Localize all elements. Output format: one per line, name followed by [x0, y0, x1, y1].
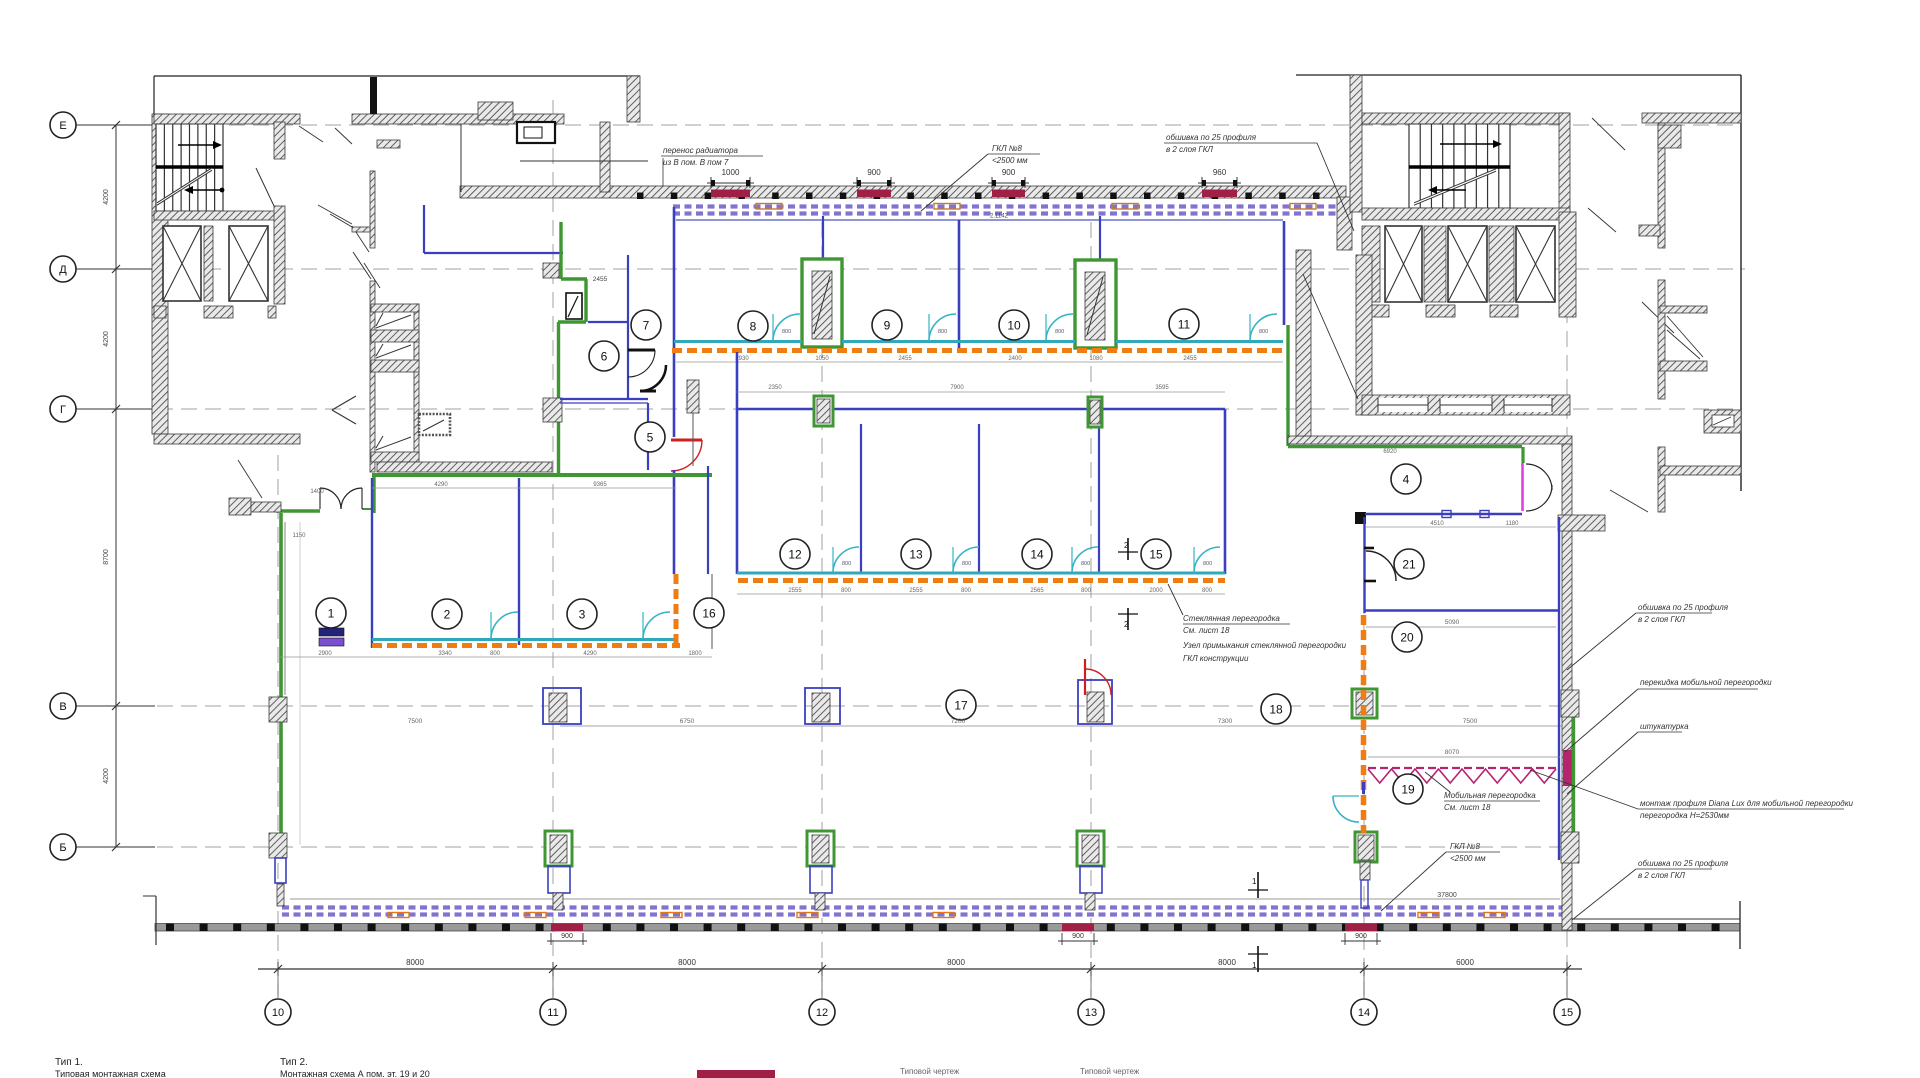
svg-text:2455: 2455	[593, 276, 608, 283]
svg-text:13: 13	[1085, 1007, 1097, 1019]
svg-text:монтаж профиля Diana Lux для м: монтаж профиля Diana Lux для мобильной п…	[1640, 799, 1853, 808]
svg-text:800: 800	[1259, 329, 1268, 335]
svg-text:800: 800	[1081, 561, 1090, 567]
svg-text:1: 1	[1252, 961, 1257, 970]
svg-text:2: 2	[1124, 620, 1129, 629]
svg-text:7900: 7900	[950, 385, 964, 391]
svg-text:1800: 1800	[688, 651, 702, 657]
svg-text:1080: 1080	[1089, 356, 1103, 362]
svg-text:1000: 1000	[722, 168, 740, 177]
svg-text:в 2 слоя ГКЛ: в 2 слоя ГКЛ	[1638, 871, 1685, 880]
svg-text:800: 800	[842, 561, 851, 567]
svg-text:800: 800	[938, 329, 947, 335]
svg-text:7200: 7200	[951, 718, 966, 725]
svg-text:2400: 2400	[1008, 356, 1022, 362]
svg-text:14: 14	[1030, 547, 1044, 561]
svg-text:Б: Б	[59, 842, 66, 854]
svg-text:7500: 7500	[408, 718, 423, 725]
svg-text:900: 900	[1355, 933, 1367, 940]
svg-text:перегородка Н=2530мм: перегородка Н=2530мм	[1640, 811, 1730, 820]
svg-text:<2500 мм: <2500 мм	[992, 156, 1028, 165]
svg-text:8700: 8700	[103, 549, 110, 565]
svg-text:12: 12	[816, 1007, 828, 1019]
svg-text:1400: 1400	[310, 489, 324, 495]
svg-text:из В пом. В пом 7: из В пом. В пом 7	[663, 158, 729, 167]
svg-text:5: 5	[647, 430, 654, 444]
svg-text:4290: 4290	[583, 651, 597, 657]
svg-text:37800: 37800	[1437, 892, 1457, 899]
svg-text:Типовой чертеж: Типовой чертеж	[1080, 1067, 1140, 1076]
svg-text:20: 20	[1400, 630, 1414, 644]
svg-text:900: 900	[1002, 168, 1016, 177]
svg-text:12: 12	[788, 547, 802, 561]
svg-text:ГКЛ конструкции: ГКЛ конструкции	[1183, 654, 1249, 663]
svg-text:в 2 слоя ГКЛ: в 2 слоя ГКЛ	[1166, 145, 1213, 154]
svg-text:10: 10	[1007, 318, 1021, 332]
svg-text:10: 10	[272, 1007, 284, 1019]
svg-text:18: 18	[1269, 702, 1283, 716]
svg-text:15: 15	[1561, 1007, 1573, 1019]
svg-text:2350: 2350	[768, 385, 782, 391]
svg-text:4: 4	[1403, 472, 1410, 486]
svg-text:21: 21	[1402, 557, 1416, 571]
svg-text:2455: 2455	[1183, 356, 1197, 362]
svg-text:8000: 8000	[678, 958, 696, 967]
svg-text:ГКЛ №8: ГКЛ №8	[992, 144, 1022, 153]
svg-text:8000: 8000	[406, 958, 424, 967]
svg-text:2.1142: 2.1142	[990, 214, 1009, 220]
svg-text:800: 800	[1202, 588, 1213, 594]
svg-text:6000: 6000	[1456, 958, 1474, 967]
svg-text:900: 900	[867, 168, 881, 177]
svg-text:<2500 мм: <2500 мм	[1450, 854, 1486, 863]
svg-text:7500: 7500	[1463, 718, 1478, 725]
svg-text:17: 17	[954, 698, 968, 712]
svg-text:1150: 1150	[293, 533, 307, 539]
svg-text:800: 800	[782, 329, 791, 335]
svg-text:4200: 4200	[103, 768, 110, 784]
svg-text:11: 11	[547, 1007, 558, 1019]
svg-text:Тип 2.: Тип 2.	[280, 1057, 308, 1068]
svg-text:2: 2	[1124, 541, 1129, 550]
svg-text:8: 8	[750, 319, 757, 333]
svg-text:В: В	[59, 701, 66, 713]
svg-text:1: 1	[328, 606, 335, 620]
svg-text:Стеклянная перегородка: Стеклянная перегородка	[1183, 614, 1280, 623]
svg-text:в 2 слоя ГКЛ: в 2 слоя ГКЛ	[1638, 615, 1685, 624]
svg-text:15: 15	[1149, 547, 1163, 561]
svg-text:Типовая монтажная схема: Типовая монтажная схема	[55, 1069, 166, 1078]
svg-text:Д: Д	[59, 264, 67, 276]
svg-text:8000: 8000	[947, 958, 965, 967]
svg-text:19: 19	[1401, 782, 1415, 796]
svg-text:5090: 5090	[1445, 619, 1460, 626]
svg-text:6: 6	[601, 349, 608, 363]
svg-text:4200: 4200	[103, 331, 110, 347]
svg-text:800: 800	[490, 651, 501, 657]
svg-text:900: 900	[561, 933, 573, 940]
svg-text:4510: 4510	[1430, 521, 1444, 527]
svg-text:6920: 6920	[1383, 449, 1397, 455]
svg-text:3595: 3595	[1155, 385, 1169, 391]
svg-text:См. лист 18: См. лист 18	[1183, 626, 1230, 635]
svg-text:800: 800	[841, 588, 852, 594]
svg-text:перенос радиатора: перенос радиатора	[663, 146, 739, 155]
svg-text:960: 960	[1213, 168, 1227, 177]
svg-text:Типовой чертеж: Типовой чертеж	[900, 1067, 960, 1076]
svg-text:800: 800	[1081, 588, 1092, 594]
svg-text:900: 900	[1072, 933, 1084, 940]
svg-text:14: 14	[1358, 1007, 1370, 1019]
svg-text:4200: 4200	[103, 189, 110, 205]
svg-text:штукатурка: штукатурка	[1640, 722, 1689, 731]
svg-text:2565: 2565	[1030, 588, 1044, 594]
svg-text:7: 7	[643, 318, 650, 332]
svg-text:2555: 2555	[909, 588, 923, 594]
svg-text:Узел примыкания стеклянной пер: Узел примыкания стеклянной перегородки	[1182, 641, 1347, 650]
svg-text:4290: 4290	[434, 482, 448, 488]
svg-text:ГКЛ №8: ГКЛ №8	[1450, 842, 1480, 851]
svg-text:11: 11	[1178, 317, 1191, 331]
svg-text:6750: 6750	[680, 718, 695, 725]
svg-text:1050: 1050	[815, 356, 829, 362]
svg-text:2000: 2000	[1149, 588, 1163, 594]
svg-text:1: 1	[1252, 877, 1257, 886]
svg-text:1180: 1180	[1506, 521, 1520, 527]
svg-text:800: 800	[1055, 329, 1064, 335]
svg-text:обшивка по 25 профиля: обшивка по 25 профиля	[1638, 859, 1729, 868]
svg-text:Е: Е	[59, 120, 66, 132]
svg-text:7300: 7300	[1218, 718, 1233, 725]
svg-text:13: 13	[909, 547, 923, 561]
svg-text:См. лист 18: См. лист 18	[1444, 803, 1491, 812]
svg-text:16: 16	[702, 606, 716, 620]
svg-text:Мобильная перегородка: Мобильная перегородка	[1444, 791, 1536, 800]
svg-text:8070: 8070	[1445, 749, 1460, 756]
svg-text:2555: 2555	[788, 588, 802, 594]
svg-text:Г: Г	[60, 404, 66, 416]
svg-text:3: 3	[579, 607, 586, 621]
svg-text:Тип 1.: Тип 1.	[55, 1057, 83, 1068]
svg-text:9: 9	[884, 318, 891, 332]
svg-text:2900: 2900	[318, 651, 332, 657]
svg-text:Монтажная схема А пом. эт. 19: Монтажная схема А пом. эт. 19 и 20	[280, 1069, 430, 1078]
svg-text:9365: 9365	[593, 482, 607, 488]
svg-text:перекидка мобильной перегородк: перекидка мобильной перегородки	[1640, 678, 1772, 687]
svg-text:обшивка по 25 профиля: обшивка по 25 профиля	[1638, 603, 1729, 612]
svg-text:3340: 3340	[438, 651, 452, 657]
svg-text:2: 2	[444, 607, 451, 621]
svg-text:800: 800	[961, 588, 972, 594]
svg-text:800: 800	[1203, 561, 1212, 567]
svg-text:800: 800	[962, 561, 971, 567]
svg-text:2455: 2455	[898, 356, 912, 362]
svg-text:обшивка по 25 профиля: обшивка по 25 профиля	[1166, 133, 1257, 142]
svg-text:8000: 8000	[1218, 958, 1236, 967]
